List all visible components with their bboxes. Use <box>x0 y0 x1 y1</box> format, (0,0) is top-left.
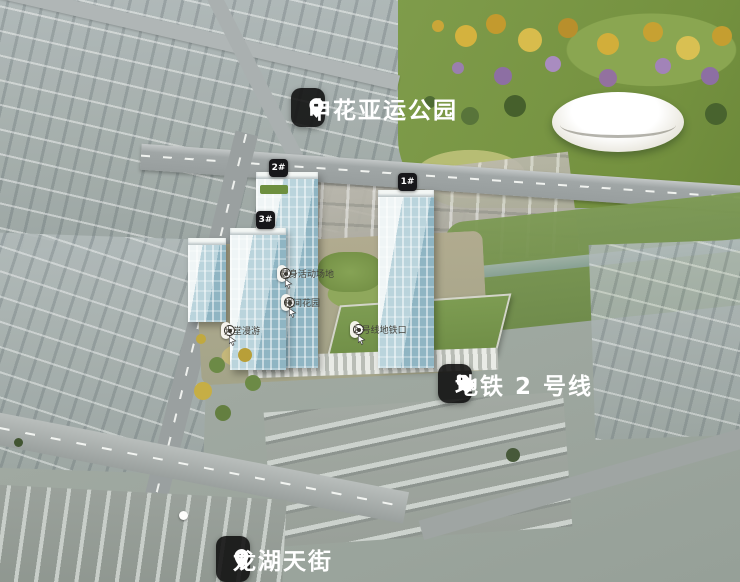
park-canopy-ridge <box>560 112 676 138</box>
tower-roof-garden <box>260 185 288 194</box>
park-marker-label: 申花亚运公园 <box>308 91 458 125</box>
city-blocks-bottom-mid <box>264 392 573 548</box>
cursor-icon <box>227 335 238 347</box>
metro-line-pill[interactable]: 地铁 2 号线 <box>438 364 472 403</box>
cursor-icon <box>287 307 298 319</box>
park-trees-purple <box>452 62 464 74</box>
street-marker-pill[interactable]: 龙湖天街 <box>216 536 250 582</box>
street-marker-label: 龙湖天街 <box>233 542 333 576</box>
building-badge-3: 3# <box>256 211 275 229</box>
building-badge-2: 2# <box>269 159 288 177</box>
metro-line-label: 地铁 2 号线 <box>455 367 593 401</box>
cursor-icon <box>283 278 294 290</box>
tower-3 <box>230 228 286 370</box>
aerial-masterplan-render: 2# 3# 1# 健身活动场地 楼间花园 大堂漫游 2 号线地铁口 申花亚运公园 <box>0 0 740 582</box>
building-badge-1: 1# <box>398 173 417 191</box>
location-pin-icon <box>308 97 325 119</box>
trees-bottom-right <box>506 448 520 462</box>
cursor-icon <box>356 334 367 346</box>
boulevard-trees <box>14 438 23 447</box>
site-label-metro-exit[interactable]: 2 号线地铁口 <box>350 321 360 338</box>
site-label-garden[interactable]: 楼间花园 <box>281 294 291 311</box>
site-landscape-trees <box>196 334 206 344</box>
city-blocks-right <box>589 239 740 440</box>
park-trees-yellow <box>432 20 444 32</box>
site-label-fitness-area[interactable]: 健身活动场地 <box>277 265 287 282</box>
site-label-lobby[interactable]: 大堂漫游 <box>221 322 231 339</box>
park-marker-pill[interactable]: 申花亚运公园 <box>291 88 325 127</box>
tower-short <box>188 238 226 322</box>
map-dot <box>179 511 188 520</box>
tower-1 <box>378 190 434 368</box>
